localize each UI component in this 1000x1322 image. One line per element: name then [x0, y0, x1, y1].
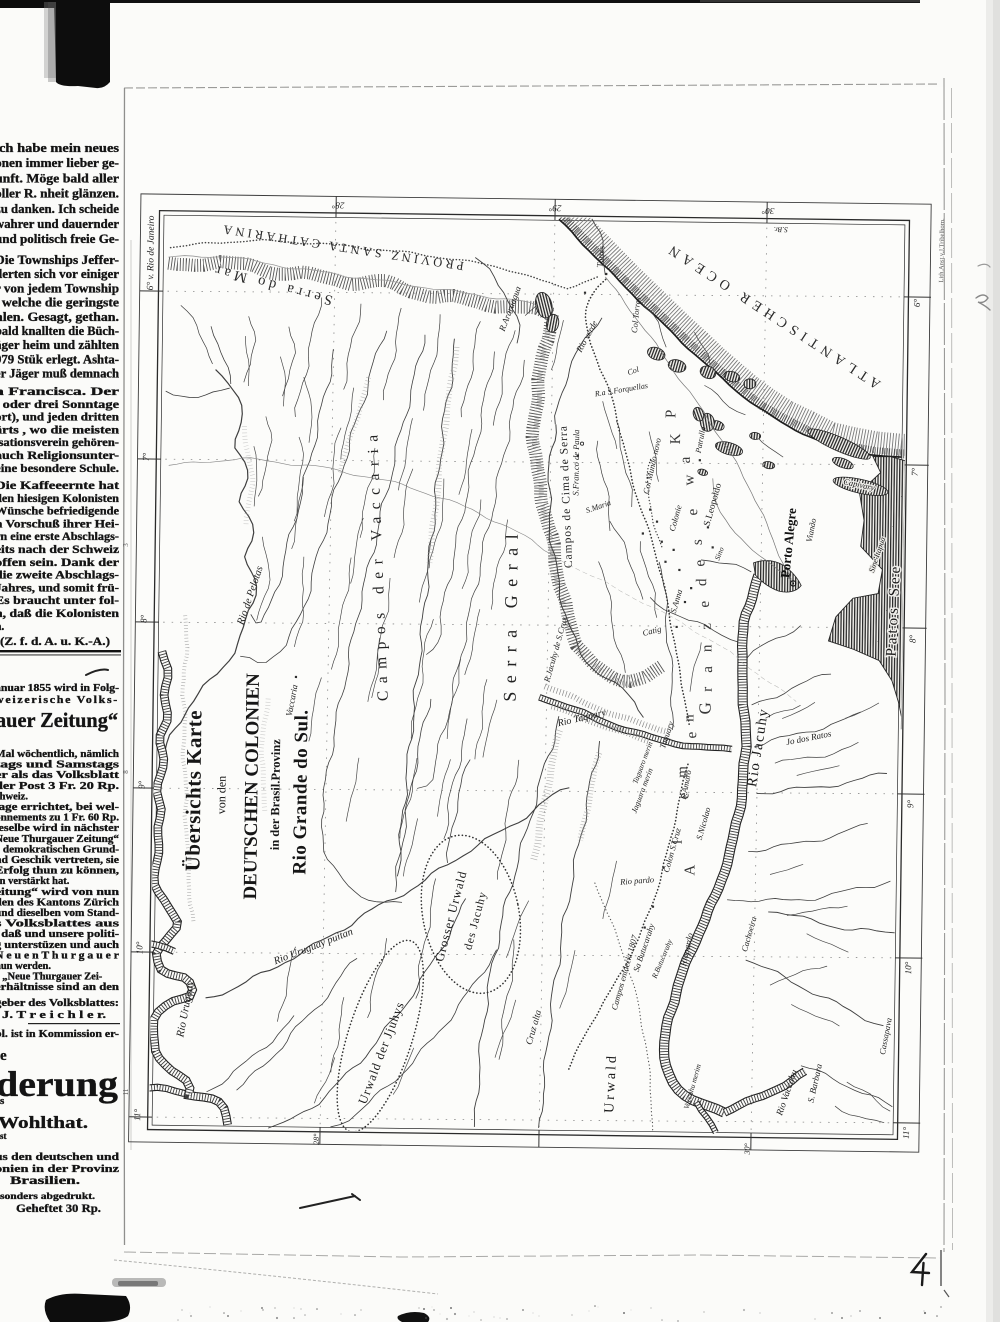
svg-text:n, daß die Kolonisten: n, daß die Kolonisten — [0, 608, 120, 620]
svg-text:s: s — [0, 1095, 5, 1107]
svg-text:Geheftet 30 Rp.: Geheftet 30 Rp. — [16, 1201, 101, 1215]
svg-text:A: A — [682, 864, 698, 875]
svg-text:11°: 11° — [132, 1108, 142, 1120]
svg-text:zu danken. Ich scheide: zu danken. Ich scheide — [0, 202, 119, 216]
svg-text:eitung“ wird von nun: eitung“ wird von nun — [0, 887, 119, 898]
svg-text:eine besondere Schule.: eine besondere Schule. — [0, 463, 119, 475]
svg-text:auch Religionsunter-: auch Religionsunter- — [0, 450, 119, 462]
svg-text:979 Stük erlegt. Ashta-: 979 Stük erlegt. Ashta- — [0, 352, 119, 366]
svg-text:sonders abgedrukt.: sonders abgedrukt. — [0, 1191, 95, 1201]
svg-text:er als das Volksblatt: er als das Volksblatt — [0, 770, 120, 781]
svg-text:9°: 9° — [136, 780, 146, 789]
svg-text:a Francisca. Der: a Francisca. Der — [0, 386, 119, 398]
svg-text:29°: 29° — [548, 203, 561, 213]
svg-text:in der Brasil.Provinz: in der Brasil.Provinz — [268, 739, 283, 851]
svg-text:s Volksblattes aus: s Volksblattes aus — [0, 919, 119, 930]
svg-text:chweiz.: chweiz. — [0, 791, 28, 802]
svg-text:8°: 8° — [139, 614, 149, 623]
svg-text:28°: 28° — [331, 200, 344, 210]
svg-text:und dieselben vom Stand-: und dieselben vom Stand- — [0, 908, 120, 919]
svg-text:Urwald: Urwald — [602, 1053, 620, 1114]
svg-text:Lith.Anst.v.J.Tribelhorn.: Lith.Anst.v.J.Tribelhorn. — [938, 218, 946, 283]
svg-text:äger heim und zählten: äger heim und zählten — [0, 338, 119, 352]
svg-text:e: e — [685, 508, 701, 515]
svg-text:n.: n. — [0, 621, 4, 633]
svg-text:Neue Thurgauer Zeitung“: Neue Thurgauer Zeitung“ — [0, 834, 119, 845]
svg-text:ieselbe wird in nächster: ieselbe wird in nächster — [0, 823, 119, 834]
svg-text:Rio Grande do Sul.: Rio Grande do Sul. — [289, 709, 312, 875]
svg-text:den des Kantons Zürich: den des Kantons Zürich — [0, 897, 119, 908]
svg-text:S.Br.: S.Br. — [774, 225, 788, 234]
svg-text:11: 11 — [122, 1088, 130, 1095]
svg-text:nd Geschik vertreten, sie: nd Geschik vertreten, sie — [0, 855, 119, 866]
svg-text:rn eine erste Abschlags-: rn eine erste Abschlags- — [0, 531, 119, 543]
svg-text:9°: 9° — [905, 799, 915, 808]
svg-text:derten sich vor einiger: derten sich vor einiger — [0, 267, 119, 281]
svg-text:die zweite Abschlags-: die zweite Abschlags- — [0, 570, 119, 582]
svg-text:ärts , wo die meisten: ärts , wo die meisten — [0, 424, 120, 436]
svg-text:S.Fran.co de Paula: S.Fran.co de Paula — [570, 429, 581, 495]
svg-text:(Z. f. d. A. u. K.-A.): (Z. f. d. A. u. K.-A.) — [0, 634, 110, 648]
svg-text:e: e — [692, 559, 708, 566]
svg-text:30°: 30° — [743, 1142, 752, 1155]
svg-text:onen immer lieber ge-: onen immer lieber ge- — [0, 156, 119, 170]
svg-text:Mal wöchentlich, nämlich: Mal wöchentlich, nämlich — [0, 749, 119, 760]
svg-text:den hiesigen Kolonisten: den hiesigen Kolonisten — [0, 493, 120, 505]
svg-text:weizerische Volks-: weizerische Volks- — [0, 695, 119, 706]
svg-text:Es braucht unter fol-: Es braucht unter fol- — [0, 595, 119, 607]
svg-text:anuar 1855 wird in Folg-: anuar 1855 wird in Folg- — [0, 683, 120, 694]
svg-text:G: G — [696, 702, 715, 715]
svg-text:hun werden.: hun werden. — [0, 961, 51, 972]
svg-text:10°: 10° — [134, 941, 144, 954]
svg-text:10°: 10° — [903, 961, 913, 974]
svg-text:Erfolg thun zu können,: Erfolg thun zu können, — [0, 866, 119, 877]
svg-text:en verstärkt hat.: en verstärkt hat. — [0, 876, 70, 887]
svg-text:28°: 28° — [312, 1133, 321, 1145]
svg-text:Jahres, und somit frü-: Jahres, und somit frü- — [0, 582, 119, 594]
svg-text:e: e — [684, 731, 700, 738]
svg-text:von den: von den — [214, 776, 229, 815]
svg-text:hlen. Gesagt, gethan.: hlen. Gesagt, gethan. — [0, 310, 119, 324]
svg-text:geber des Volksblattes:: geber des Volksblattes: — [0, 998, 119, 1009]
svg-text:e: e — [697, 601, 713, 608]
svg-text:r von jedem Township: r von jedem Township — [0, 281, 119, 295]
svg-text:11°: 11° — [901, 1127, 911, 1139]
svg-text:w: w — [681, 474, 697, 485]
svg-text:r: r — [700, 687, 716, 692]
svg-text:P: P — [663, 410, 679, 419]
svg-text:e: e — [0, 1048, 7, 1064]
svg-text:bl. ist in Kommission er-: bl. ist in Kommission er- — [0, 1029, 120, 1040]
svg-text:und politisch freie Ge-: und politisch freie Ge- — [0, 232, 119, 246]
svg-text:ich habe mein neues: ich habe mein neues — [0, 141, 119, 155]
svg-text:30°: 30° — [761, 206, 775, 216]
svg-text:Brasilien.: Brasilien. — [10, 1175, 80, 1187]
svg-text:n Vorschuß ihrer Hei-: n Vorschuß ihrer Hei- — [0, 518, 119, 530]
svg-text:e demokratischen Grund-: e demokratischen Grund- — [0, 844, 120, 855]
svg-text:3: 3 — [122, 543, 130, 547]
svg-text:, welche die geringste: , welche die geringste — [0, 296, 119, 310]
svg-text:7°: 7° — [141, 452, 151, 461]
svg-text:st: st — [0, 1131, 7, 1141]
svg-text:n: n — [681, 714, 697, 722]
svg-text:er Jäger muß demnach: er Jäger muß demnach — [0, 367, 119, 381]
svg-text:wahrer und dauernder: wahrer und dauernder — [0, 217, 119, 231]
svg-text:7°: 7° — [910, 468, 920, 477]
svg-text:DEUTSCHEN COLONIEN: DEUTSCHEN COLONIEN — [240, 673, 264, 900]
svg-text:onien in der Provinz: onien in der Provinz — [0, 1163, 119, 1175]
svg-text:8°: 8° — [907, 635, 917, 644]
svg-text:N e u e n T h u r g a u e r: N e u e n T h u r g a u e r — [0, 950, 119, 961]
svg-text:6° v. Rio de Janeiro: 6° v. Rio de Janeiro — [145, 215, 157, 290]
svg-text:e „Neue Thurgauer Zei-: e „Neue Thurgauer Zei- — [0, 972, 103, 983]
svg-text:i oder drei Sonntage: i oder drei Sonntage — [0, 399, 119, 411]
svg-text:6°: 6° — [912, 299, 922, 308]
svg-text:erhältnisse sind an den: erhältnisse sind an den — [0, 982, 119, 993]
svg-text:ort), und jeden dritten: ort), und jeden dritten — [0, 412, 120, 424]
svg-text:Die Kaffeeernte hat: Die Kaffeeernte hat — [0, 480, 119, 492]
svg-text:der Post 3 Fr. 20 Rp.: der Post 3 Fr. 20 Rp. — [0, 781, 120, 792]
svg-text:K: K — [668, 433, 684, 444]
svg-text:unft. Möge bald aller: unft. Möge bald aller — [0, 171, 119, 185]
svg-text:a: a — [700, 666, 716, 673]
svg-text:lage errichtet, bei wel-: lage errichtet, bei wel- — [0, 802, 120, 813]
svg-text:oller R. nheit glänzen.: oller R. nheit glänzen. — [0, 187, 119, 201]
svg-text:g unterstüzen und auch: g unterstüzen und auch — [0, 940, 119, 951]
svg-text:eits nach der Schweiz: eits nach der Schweiz — [0, 544, 119, 556]
svg-text:Übersichts Karte: Übersichts Karte — [180, 710, 206, 872]
svg-text:Wohlthat.: Wohlthat. — [0, 1113, 88, 1132]
svg-text:tags und Samstags: tags und Samstags — [0, 760, 119, 771]
svg-text:a: a — [678, 456, 694, 463]
svg-text:derung: derung — [0, 1064, 118, 1104]
svg-text:n: n — [699, 644, 715, 652]
svg-text:bald knallten die Büch-: bald knallten die Büch- — [0, 324, 119, 338]
svg-text:us den deutschen und: us den deutschen und — [0, 1151, 119, 1163]
svg-text:auer Zeitung“: auer Zeitung“ — [0, 708, 118, 732]
svg-text:isationsverein gehören-: isationsverein gehören- — [0, 437, 119, 449]
svg-text:s: s — [690, 539, 706, 545]
svg-text:onnements zu 1 Fr. 60 Rp.: onnements zu 1 Fr. 60 Rp. — [0, 813, 119, 824]
svg-text:, daß und unsere politi-: , daß und unsere politi- — [0, 929, 120, 940]
svg-text:z: z — [699, 623, 715, 630]
svg-text:offen sein. Dank der: offen sein. Dank der — [0, 557, 119, 569]
svg-text:Die Townships Jeffer-: Die Townships Jeffer- — [0, 253, 119, 267]
svg-text:d: d — [694, 578, 710, 586]
svg-text:8: 8 — [122, 770, 130, 774]
svg-text:Serra Geral: Serra Geral — [500, 526, 522, 702]
svg-text:Wünsche befriedigende: Wünsche befriedigende — [0, 506, 119, 518]
svg-text:J. T r e i c h l e r.: J. T r e i c h l e r. — [2, 1009, 106, 1021]
